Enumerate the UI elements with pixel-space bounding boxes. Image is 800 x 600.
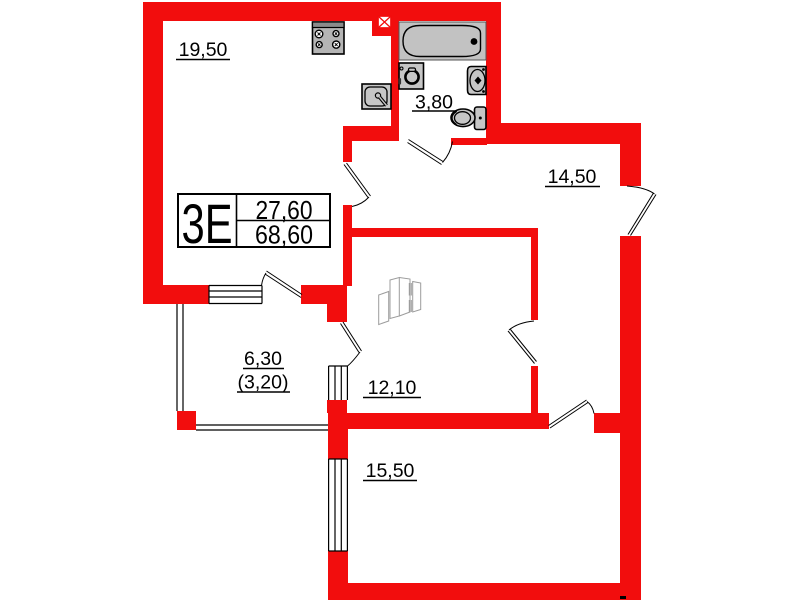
svg-text:19,50: 19,50	[179, 39, 228, 61]
svg-text:68,60: 68,60	[255, 220, 313, 250]
svg-text:(3,20): (3,20)	[238, 372, 289, 394]
svg-text:15,50: 15,50	[366, 460, 415, 482]
svg-text:3Е: 3Е	[182, 192, 233, 255]
svg-text:14,50: 14,50	[548, 166, 597, 188]
svg-text:12,10: 12,10	[368, 377, 417, 399]
svg-text:6,30: 6,30	[244, 348, 282, 370]
